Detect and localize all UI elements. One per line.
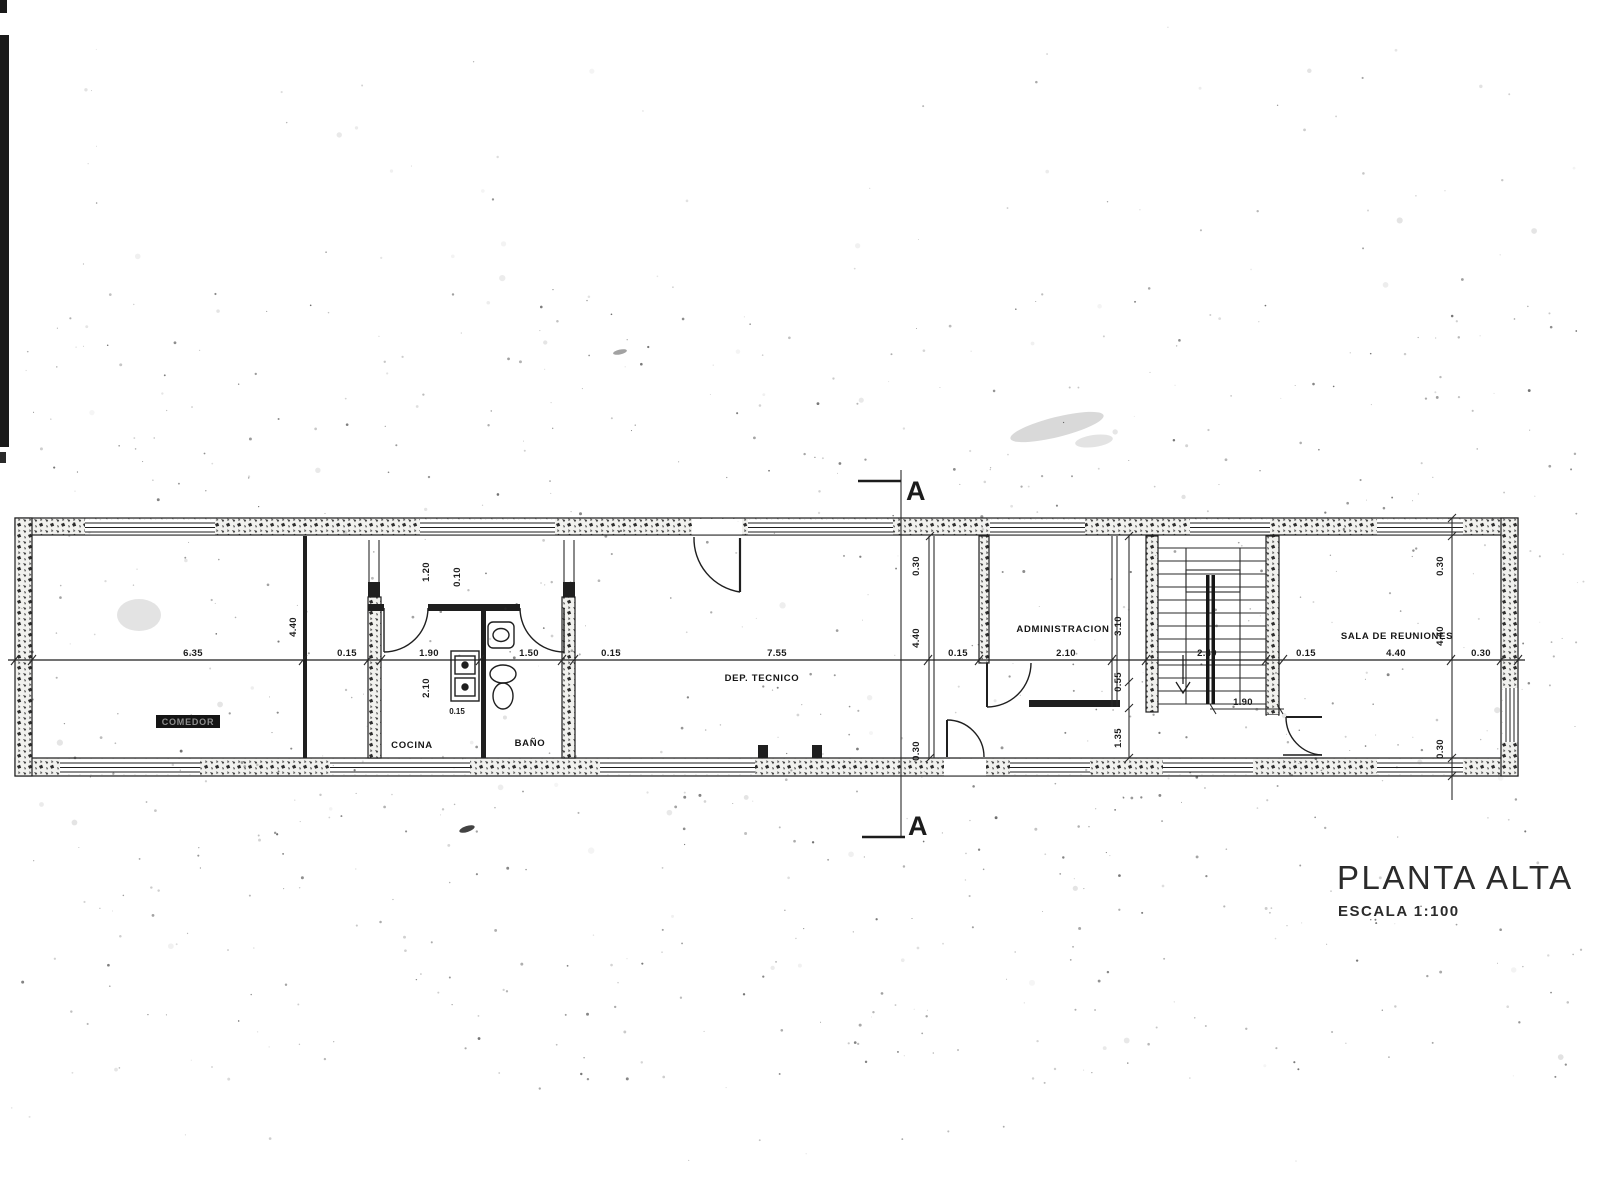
scan-noise [11, 27, 1584, 1162]
wall-left [15, 518, 32, 776]
wall-comedor-east [303, 536, 307, 758]
dim-wall: 0.15 [1296, 648, 1316, 659]
room-labels: COMEDOR COCINA BAÑO DEP. TECNICO ADMINIS… [156, 624, 1453, 751]
dim-depth: 4.40 [911, 628, 922, 648]
scanned-floor-plan-page: A A 6.35 0.15 1.90 1.50 0.15 7.55 0.15 2… [0, 0, 1600, 1200]
drawing-scale: ESCALA 1:100 [1338, 903, 1460, 920]
scan-artifacts [0, 0, 1114, 834]
dim-wall-right: 0.30 [1471, 648, 1491, 659]
stair-stringer [1206, 575, 1210, 704]
door-arc-sala [1286, 717, 1322, 755]
floor-plan-drawing: A A 6.35 0.15 1.90 1.50 0.15 7.55 0.15 2… [0, 0, 1600, 1200]
interior-walls [303, 536, 1279, 758]
wall-cocina-west [368, 597, 381, 758]
wall-stair-west [1146, 536, 1158, 712]
dim-deptecnico-width: 7.55 [767, 648, 787, 659]
dim-corridor-width: 1.20 [421, 562, 432, 582]
dim-sala-width: 4.40 [1386, 648, 1406, 659]
room-label-bano: BAÑO [515, 738, 546, 749]
window-symbols [60, 519, 1517, 775]
room-label-dep-tecnico: DEP. TECNICO [725, 673, 800, 684]
wall-stub [758, 745, 768, 758]
bath-sink [488, 622, 514, 648]
dim-ticks [11, 514, 1522, 780]
staircase [1158, 548, 1284, 714]
dim-comedor-depth: 4.40 [288, 617, 299, 637]
door-arc-deptecnico [694, 537, 740, 592]
room-label-cocina: COCINA [391, 740, 433, 751]
room-label-comedor: COMEDOR [162, 717, 215, 727]
room-label-administracion: ADMINISTRACION [1016, 624, 1109, 635]
dim-bano-width: 1.50 [519, 648, 539, 659]
door-arc-entrance [947, 720, 984, 757]
dim-stairwell-width: 2.40 [1197, 648, 1217, 659]
drawing-title: PLANTA ALTA [1337, 859, 1574, 896]
toilet-tank [490, 665, 516, 683]
dim-stair-run: 1.90 [1233, 697, 1253, 708]
door-arc-bano [520, 608, 564, 652]
wall-cocina-bano [481, 611, 486, 758]
wall-stair-east [1266, 536, 1279, 715]
dim-wall: 0.15 [601, 648, 621, 659]
door-arc-cocina [384, 608, 428, 652]
dim-admin-width: 2.10 [1056, 648, 1076, 659]
building-plan [15, 518, 1518, 776]
wall-admin-west [979, 536, 989, 663]
dim-wall: 0.15 [948, 648, 968, 659]
dim-cocina-depth: 2.10 [421, 678, 432, 698]
wall-stub [812, 745, 822, 758]
wall-admin-south [1029, 700, 1120, 707]
dim-cocina-wall: 0.15 [449, 707, 465, 716]
dim-admin-wall: 0.55 [1113, 672, 1124, 692]
dim-wall-bottom: 0.30 [911, 741, 922, 761]
room-label-sala-reuniones: SALA DE REUNIONES [1341, 631, 1453, 642]
dim-wall-bottom: 0.30 [1435, 739, 1446, 759]
toilet-bowl [493, 683, 513, 709]
wall-bottom [15, 758, 1518, 776]
section-letter-bottom: A [908, 811, 928, 841]
door-jamb [368, 582, 380, 597]
section-letter-top: A [906, 476, 926, 506]
title-block: PLANTA ALTA ESCALA 1:100 [1337, 859, 1574, 920]
dim-corridor: 1.35 [1113, 728, 1124, 748]
dim-wall: 0.10 [452, 567, 463, 587]
dim-cocina-width: 1.90 [419, 648, 439, 659]
dim-wall-top: 0.30 [1435, 556, 1446, 576]
dim-wall-top: 0.30 [911, 556, 922, 576]
dim-wall: 0.15 [337, 648, 357, 659]
interior-floor [32, 535, 1501, 758]
dim-admin-depth: 3.10 [1113, 616, 1124, 636]
dim-comedor-width: 6.35 [183, 648, 203, 659]
